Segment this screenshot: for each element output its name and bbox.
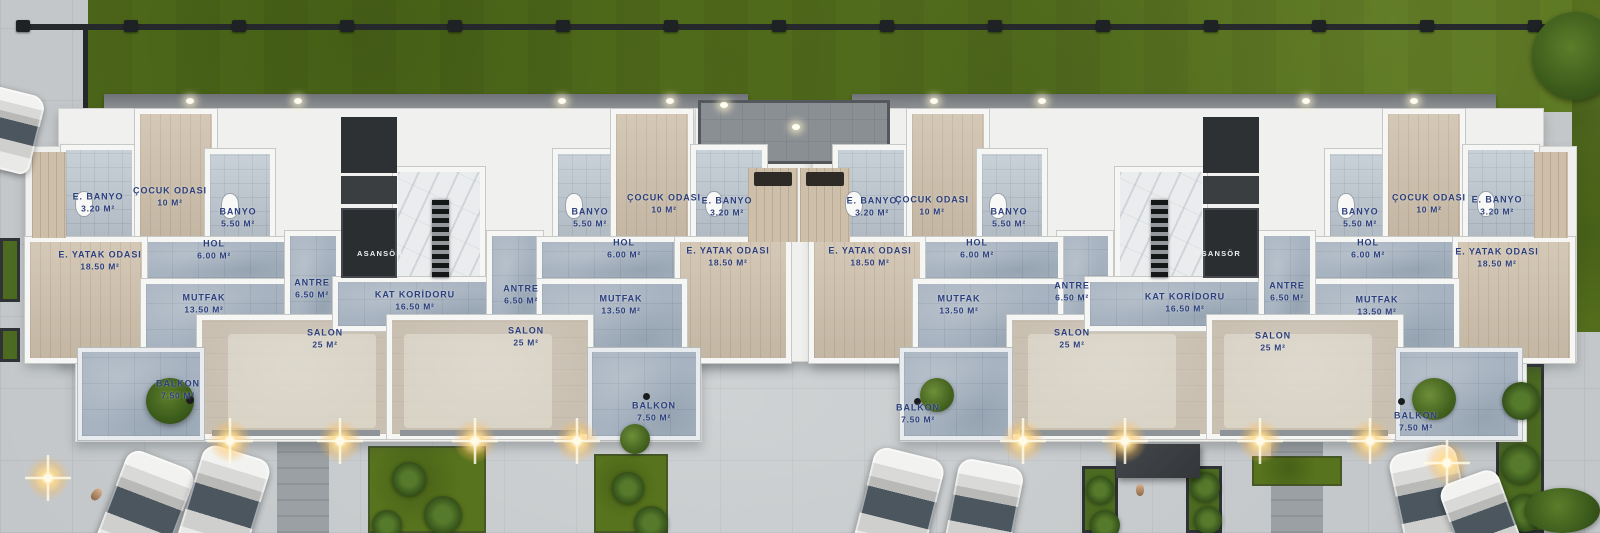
- room-area: 6.50 M²: [504, 295, 538, 306]
- fence-post: [1096, 20, 1110, 32]
- room-label-salon: SALON25 M²: [1054, 328, 1090, 351]
- room-area: 7.50 M²: [1399, 422, 1433, 433]
- facade-light-flare: [452, 418, 498, 464]
- facade-light-flare: [1000, 418, 1046, 464]
- room-name: ASANSÖR: [357, 249, 403, 259]
- facade-light-flare: [1237, 418, 1283, 464]
- room-label-antre: ANTRE6.50 M²: [1269, 281, 1305, 304]
- room-label-salon: SALON25 M²: [508, 326, 544, 349]
- room-label-koridor: KAT KORİDORU16.50 M²: [375, 290, 455, 313]
- room-name: E. YATAK ODASI: [58, 250, 141, 262]
- room-cocuk-odasi-a2: [616, 114, 688, 236]
- room-area: 3.20 M²: [855, 207, 889, 218]
- ceiling-light: [558, 98, 566, 104]
- fence-post: [664, 20, 678, 32]
- palm-plant: [1090, 510, 1120, 533]
- room-area: 18.50 M²: [1477, 258, 1516, 269]
- wardrobe-unit: [806, 172, 844, 186]
- room-name: SALON: [1054, 328, 1090, 340]
- room-label-mutfak: MUTFAK13.50 M²: [600, 294, 643, 317]
- room-name: E. BANYO: [702, 196, 753, 208]
- ceiling-light: [294, 98, 302, 104]
- room-name: BANYO: [219, 207, 256, 219]
- room-label-salon: SALON25 M²: [1255, 331, 1291, 354]
- room-area: 10 M²: [651, 204, 676, 215]
- palm-plant: [1500, 444, 1540, 484]
- room-label-cocuk: ÇOCUK ODASI10 M²: [895, 195, 969, 218]
- edge-planter: [0, 238, 20, 302]
- room-area: 6.00 M²: [607, 249, 641, 260]
- room-name: ÇOCUK ODASI: [1392, 193, 1466, 205]
- room-name: SALON: [307, 328, 343, 340]
- ceiling-light: [186, 98, 194, 104]
- room-name: MUTFAK: [183, 293, 226, 305]
- facade-light-flare: [1102, 418, 1148, 464]
- room-area: 13.50 M²: [939, 305, 978, 316]
- facade-light-flare: [1347, 418, 1393, 464]
- room-area: 6.50 M²: [1270, 292, 1304, 303]
- room-label-hol: HOL6.00 M²: [607, 238, 641, 261]
- edge-planter: [0, 328, 20, 362]
- room-area: 5.50 M²: [221, 218, 255, 229]
- room-area: 6.00 M²: [960, 249, 994, 260]
- room-area: 5.50 M²: [1343, 218, 1377, 229]
- room-label-antre: ANTRE6.50 M²: [294, 278, 330, 301]
- palm-plant: [1086, 476, 1114, 504]
- room-area: 10 M²: [919, 206, 944, 217]
- room-name: HOL: [966, 238, 988, 250]
- room-name: MUTFAK: [938, 294, 981, 306]
- room-label-e_yatak: E. YATAK ODASI18.50 M²: [686, 246, 769, 269]
- room-area: 6.00 M²: [1351, 249, 1385, 260]
- room-area: 18.50 M²: [708, 257, 747, 268]
- ceiling-light: [1410, 98, 1418, 104]
- fence-post: [340, 20, 354, 32]
- elevator-shaft-right: [1203, 208, 1259, 278]
- person: [1136, 484, 1144, 496]
- room-name: BALKON: [896, 403, 940, 415]
- room-label-e_banyo: E. BANYO3.20 M²: [702, 196, 753, 219]
- room-area: 3.20 M²: [1480, 206, 1514, 217]
- elevator-upper-right: [1203, 176, 1259, 204]
- room-label-banyo: BANYO5.50 M²: [219, 207, 256, 230]
- room-name: BALKON: [1394, 411, 1438, 423]
- salon-rug: [1224, 334, 1372, 428]
- room-label-mutfak: MUTFAK13.50 M²: [938, 294, 981, 317]
- ceiling-light: [1302, 98, 1310, 104]
- elevator-upper-left: [341, 176, 397, 204]
- room-name: KAT KORİDORU: [1145, 292, 1225, 304]
- room-label-cocuk: ÇOCUK ODASI10 M²: [627, 193, 701, 216]
- room-label-hol: HOL6.00 M²: [960, 238, 994, 261]
- room-area: 16.50 M²: [1165, 303, 1204, 314]
- fence-post: [448, 20, 462, 32]
- stair-void-right: [1203, 117, 1259, 173]
- elevator-shaft-left: [341, 208, 397, 278]
- palm-plant: [612, 472, 644, 504]
- room-area: 13.50 M²: [184, 304, 223, 315]
- room-area: 25 M²: [1059, 339, 1084, 350]
- room-area: 13.50 M²: [1357, 306, 1396, 317]
- room-label-salon: SALON25 M²: [307, 328, 343, 351]
- room-label-asansor: ASANSÖR: [1195, 249, 1241, 259]
- room-name: ANTRE: [1269, 281, 1305, 293]
- stair-flight-left: [432, 200, 449, 278]
- fence-post: [16, 20, 30, 32]
- room-label-e_banyo: E. BANYO3.20 M²: [1472, 195, 1523, 218]
- facade-light-flare: [1424, 440, 1470, 486]
- fence-post: [124, 20, 138, 32]
- room-label-hol: HOL6.00 M²: [1351, 238, 1385, 261]
- fence-post: [772, 20, 786, 32]
- room-name: ANTRE: [1054, 281, 1090, 293]
- room-area: 25 M²: [312, 339, 337, 350]
- fence-post: [880, 20, 894, 32]
- salon-rug: [228, 334, 376, 428]
- room-label-antre: ANTRE6.50 M²: [503, 284, 539, 307]
- room-name: ÇOCUK ODASI: [895, 195, 969, 207]
- room-area: 5.50 M²: [573, 218, 607, 229]
- room-area: 6.50 M²: [1055, 292, 1089, 303]
- balcony-plant: [620, 424, 650, 454]
- room-name: KAT KORİDORU: [375, 290, 455, 302]
- palm-plant: [424, 496, 462, 533]
- facade-light-flare: [25, 455, 71, 501]
- room-label-banyo: BANYO5.50 M²: [571, 207, 608, 230]
- room-cocuk-odasi-a1: [140, 114, 212, 236]
- room-name: ÇOCUK ODASI: [627, 193, 701, 205]
- room-label-e_yatak: E. YATAK ODASI18.50 M²: [58, 250, 141, 273]
- facade-light-flare: [554, 418, 600, 464]
- room-name: BANYO: [1341, 207, 1378, 219]
- room-area: 5.50 M²: [992, 218, 1026, 229]
- palm-plant: [392, 462, 426, 496]
- room-area: 7.50 M²: [637, 412, 671, 423]
- ceiling-light: [930, 98, 938, 104]
- parked-car: [850, 445, 947, 533]
- room-label-asansor: ASANSÖR: [357, 249, 403, 259]
- fence-post: [1204, 20, 1218, 32]
- balcony-lamp: [643, 393, 650, 400]
- palm-plant: [1194, 506, 1222, 533]
- stair-void-left: [341, 117, 397, 173]
- room-label-hol: HOL6.00 M²: [197, 239, 231, 262]
- room-area: 6.50 M²: [295, 289, 329, 300]
- stair-flight-right: [1151, 200, 1168, 278]
- palm-plant: [1502, 382, 1540, 420]
- fence-post: [988, 20, 1002, 32]
- room-label-koridor: KAT KORİDORU16.50 M²: [1145, 292, 1225, 315]
- room-label-antre: ANTRE6.50 M²: [1054, 281, 1090, 304]
- room-name: ANTRE: [294, 278, 330, 290]
- palm-plant: [634, 506, 668, 533]
- room-name: BANYO: [990, 207, 1027, 219]
- room-name: SALON: [508, 326, 544, 338]
- room-label-banyo: BANYO5.50 M²: [990, 207, 1027, 230]
- room-area: 6.00 M²: [197, 250, 231, 261]
- room-label-e_yatak: E. YATAK ODASI18.50 M²: [1455, 247, 1538, 270]
- room-name: E. BANYO: [1472, 195, 1523, 207]
- room-name: E. YATAK ODASI: [828, 246, 911, 258]
- room-name: BANYO: [571, 207, 608, 219]
- room-name: ÇOCUK ODASI: [133, 186, 207, 198]
- room-name: E. YATAK ODASI: [686, 246, 769, 258]
- ceiling-light: [1038, 98, 1046, 104]
- tree-canopy: [1524, 488, 1600, 533]
- fence-post: [1420, 20, 1434, 32]
- wardrobe-strip: [1534, 152, 1568, 238]
- room-label-e_banyo: E. BANYO3.20 M²: [847, 196, 898, 219]
- ceiling-light: [792, 124, 800, 130]
- room-name: HOL: [613, 238, 635, 250]
- room-cocuk-odasi-a3: [912, 114, 984, 236]
- room-name: HOL: [1357, 238, 1379, 250]
- facade-light-flare: [317, 418, 363, 464]
- room-area: 16.50 M²: [395, 301, 434, 312]
- room-name: ANTRE: [503, 284, 539, 296]
- room-label-cocuk: ÇOCUK ODASI10 M²: [1392, 193, 1466, 216]
- person: [89, 487, 104, 503]
- room-area: 3.20 M²: [81, 203, 115, 214]
- room-label-balkon: BALKON7.50 M²: [1394, 411, 1438, 434]
- room-area: 3.20 M²: [710, 207, 744, 218]
- room-label-mutfak: MUTFAK13.50 M²: [1356, 295, 1399, 318]
- room-area: 7.50 M²: [161, 390, 195, 401]
- room-label-cocuk: ÇOCUK ODASI10 M²: [133, 186, 207, 209]
- wardrobe-strip: [32, 152, 66, 238]
- room-name: ASANSÖR: [1195, 249, 1241, 259]
- room-label-banyo: BANYO5.50 M²: [1341, 207, 1378, 230]
- room-area: 10 M²: [1416, 204, 1441, 215]
- palm-plant: [372, 510, 402, 533]
- room-antre-a2: [492, 236, 538, 328]
- ceiling-light: [720, 102, 728, 108]
- room-label-e_banyo: E. BANYO3.20 M²: [73, 192, 124, 215]
- room-name: E. BANYO: [847, 196, 898, 208]
- room-area: 25 M²: [513, 337, 538, 348]
- room-name: E. YATAK ODASI: [1455, 247, 1538, 259]
- room-area: 7.50 M²: [901, 414, 935, 425]
- room-name: BALKON: [632, 401, 676, 413]
- room-cocuk-odasi-a4: [1388, 114, 1460, 236]
- room-label-balkon: BALKON7.50 M²: [156, 379, 200, 402]
- room-label-mutfak: MUTFAK13.50 M²: [183, 293, 226, 316]
- salon-rug: [1028, 334, 1176, 428]
- balcony-lamp: [1398, 398, 1405, 405]
- fence-post: [232, 20, 246, 32]
- room-name: BALKON: [156, 379, 200, 391]
- fence-post: [1312, 20, 1326, 32]
- room-area: 18.50 M²: [850, 257, 889, 268]
- fence-post: [556, 20, 570, 32]
- room-label-balkon: BALKON7.50 M²: [896, 403, 940, 426]
- room-label-e_yatak: E. YATAK ODASI18.50 M²: [828, 246, 911, 269]
- room-label-balkon: BALKON7.50 M²: [632, 401, 676, 424]
- room-area: 13.50 M²: [601, 305, 640, 316]
- room-name: E. BANYO: [73, 192, 124, 204]
- room-name: MUTFAK: [600, 294, 643, 306]
- wardrobe-unit: [754, 172, 792, 186]
- ceiling-light: [666, 98, 674, 104]
- room-area: 25 M²: [1260, 342, 1285, 353]
- floor-plan-render: E. BANYO3.20 M²ÇOCUK ODASI10 M²BANYO5.50…: [0, 0, 1600, 533]
- room-name: SALON: [1255, 331, 1291, 343]
- room-area: 18.50 M²: [80, 261, 119, 272]
- room-name: HOL: [203, 239, 225, 251]
- room-area: 10 M²: [157, 197, 182, 208]
- facade-light-flare: [207, 418, 253, 464]
- room-name: MUTFAK: [1356, 295, 1399, 307]
- parked-car: [941, 457, 1026, 533]
